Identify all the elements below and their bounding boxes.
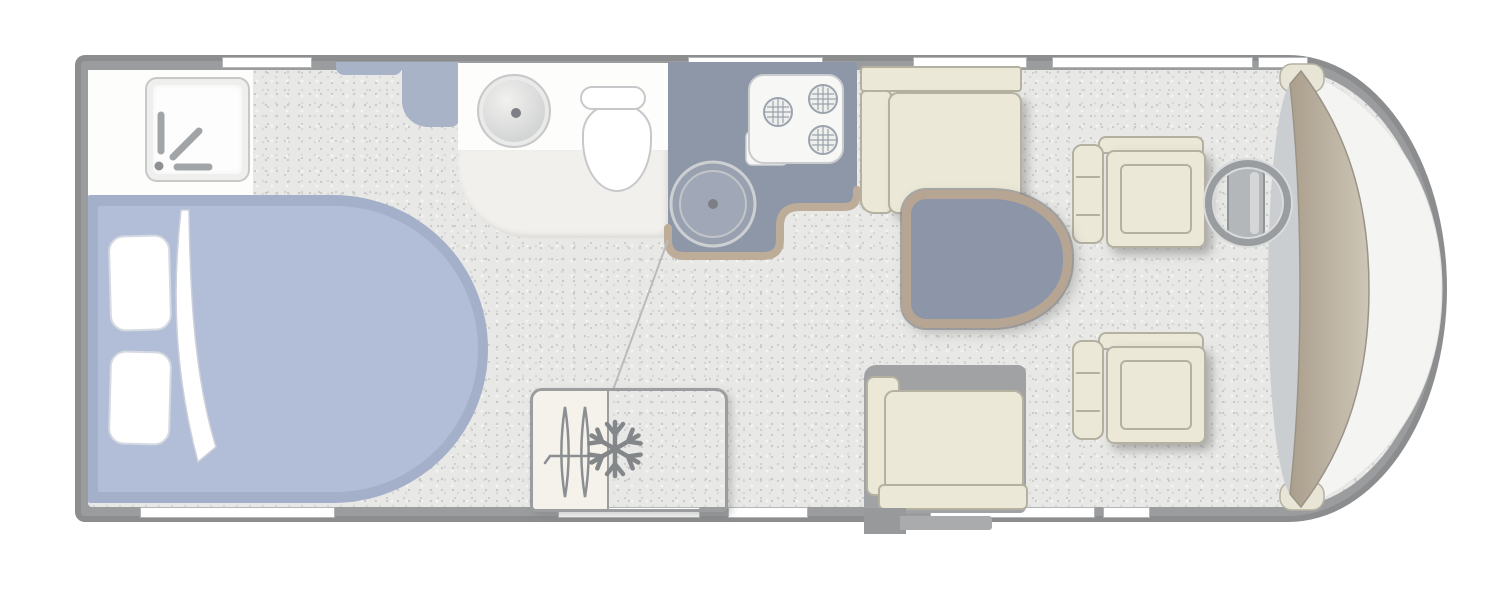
- kitchen-sink: [671, 162, 755, 246]
- window-top-1: [222, 57, 312, 68]
- kitchen-area: [660, 55, 865, 400]
- snowflake-icon: [561, 395, 669, 503]
- armrest-line: [1076, 410, 1100, 412]
- wardrobe: [402, 62, 460, 127]
- fridge-heater-unit: [530, 388, 728, 512]
- burner-icon: [809, 85, 837, 113]
- shower-head-icon: [147, 79, 248, 180]
- window-bottom-4: [1103, 507, 1150, 518]
- armrest-line: [1076, 176, 1100, 178]
- cab-front: [1180, 55, 1455, 525]
- travel-seat-front-cushion: [878, 484, 1028, 510]
- burner-icon: [764, 98, 792, 126]
- motorhome-floorplan: [0, 0, 1500, 591]
- shower-tray: [145, 77, 250, 182]
- seat-cushion: [1106, 346, 1206, 444]
- travel-seat: [884, 390, 1024, 492]
- armrest-line: [1076, 372, 1100, 374]
- steering-wheel-spoke: [1250, 172, 1259, 234]
- window-bottom-1: [140, 507, 335, 518]
- toilet-cistern: [580, 86, 646, 110]
- seat-cushion: [1106, 150, 1206, 248]
- basin-drain-icon: [511, 108, 521, 118]
- duvet-fold: [165, 200, 227, 470]
- driver-seat: [1072, 136, 1206, 248]
- entry-step-tread: [900, 516, 992, 530]
- steering-wheel: [1205, 160, 1291, 246]
- overhead-shelf: [336, 62, 402, 75]
- burner-icon: [809, 126, 837, 154]
- pillow-bottom: [108, 350, 172, 446]
- passenger-seat: [1072, 332, 1206, 444]
- pillow-top: [108, 234, 172, 332]
- bench-backrest: [860, 66, 1022, 92]
- washbasin: [477, 74, 551, 148]
- seat-armrest: [1072, 340, 1104, 440]
- dinette-table: [902, 190, 1072, 328]
- armrest-line: [1076, 214, 1100, 216]
- window-bottom-2: [728, 507, 808, 518]
- seat-armrest: [1072, 144, 1104, 244]
